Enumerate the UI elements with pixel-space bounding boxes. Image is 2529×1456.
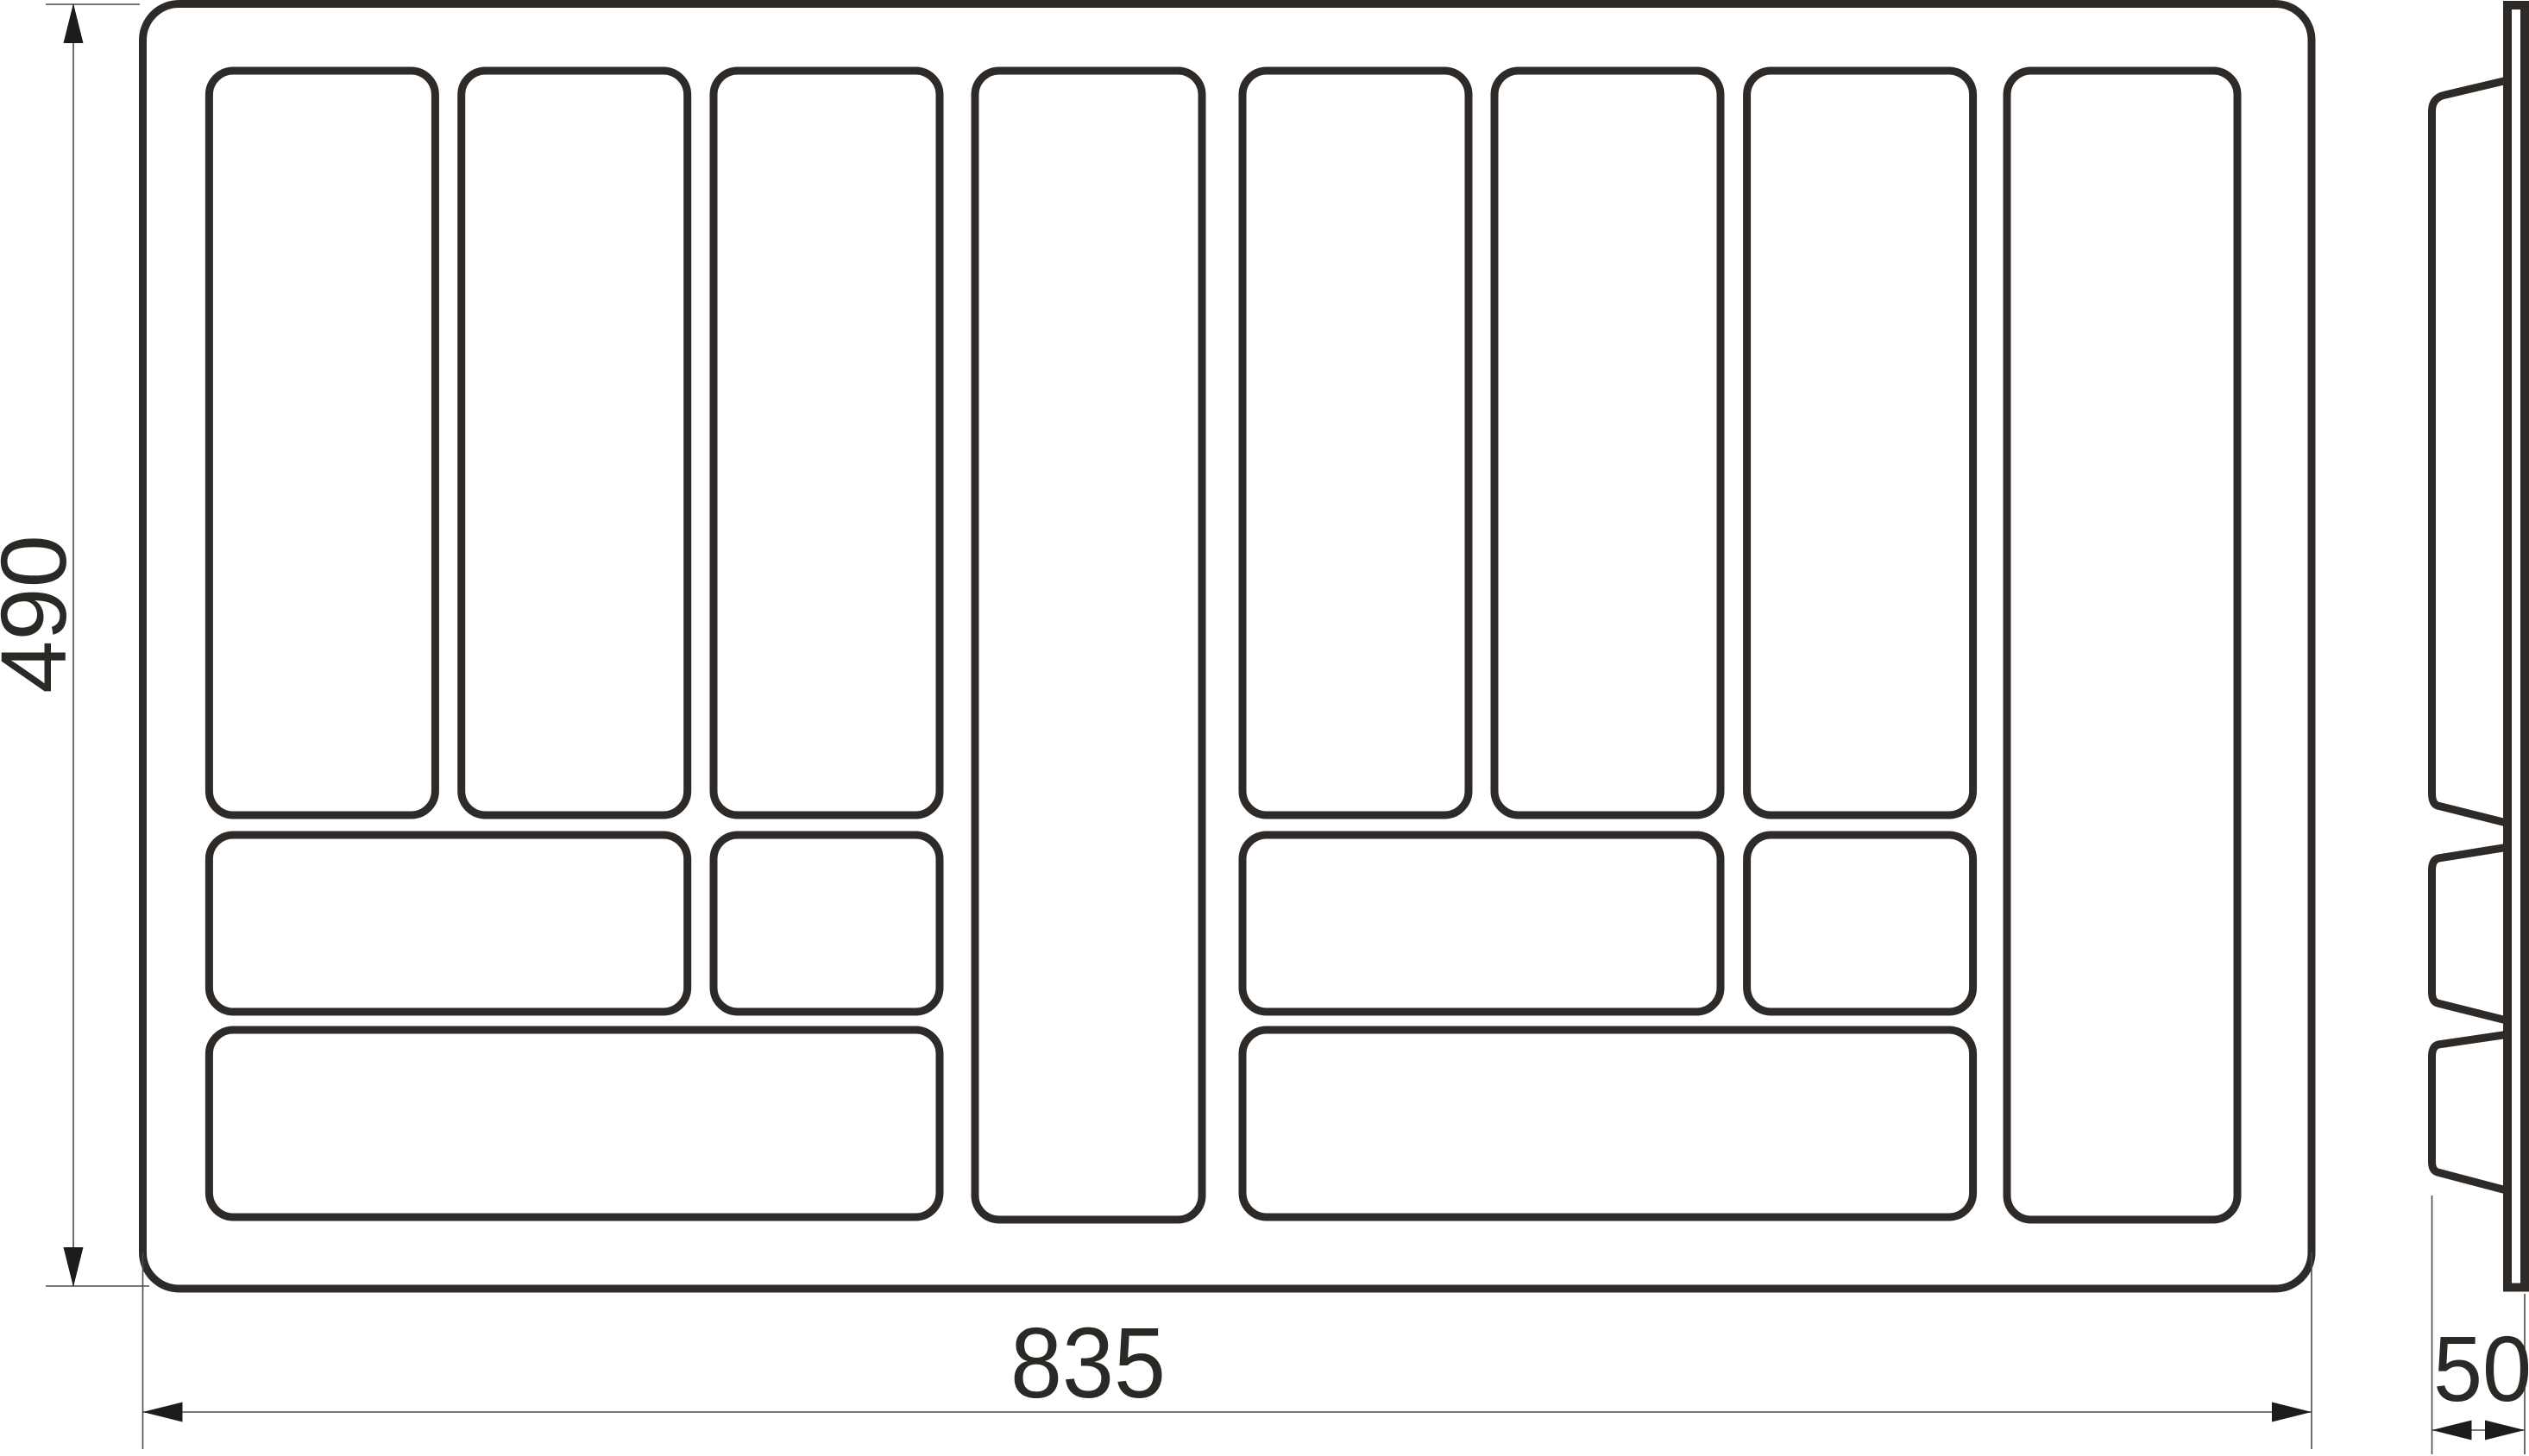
svg-text:490: 490: [0, 535, 86, 693]
svg-text:50: 50: [2433, 1318, 2529, 1421]
svg-text:835: 835: [1010, 1307, 1166, 1418]
